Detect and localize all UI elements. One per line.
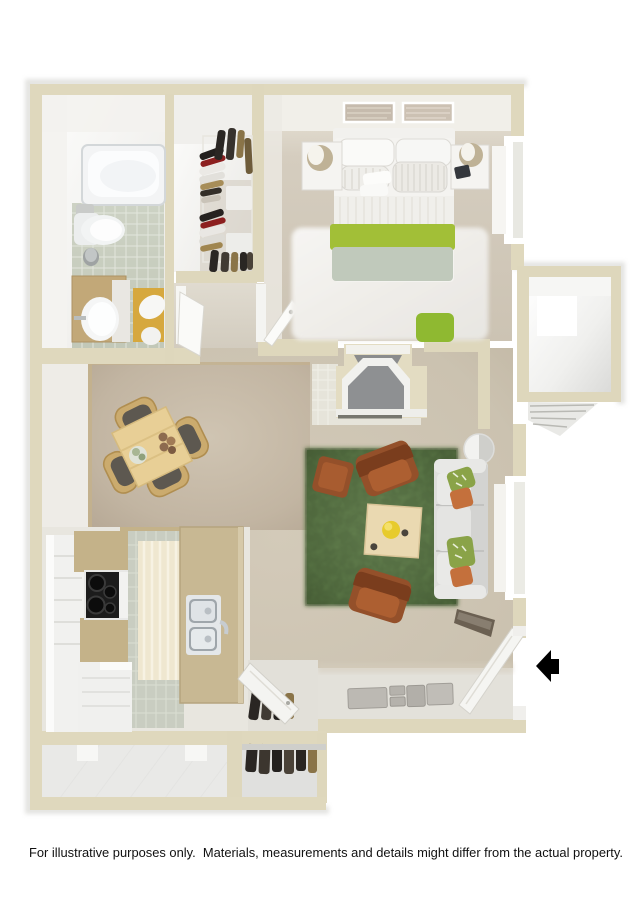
svg-text:For illustrative purposes only: For illustrative purposes only. Material… (29, 845, 623, 860)
